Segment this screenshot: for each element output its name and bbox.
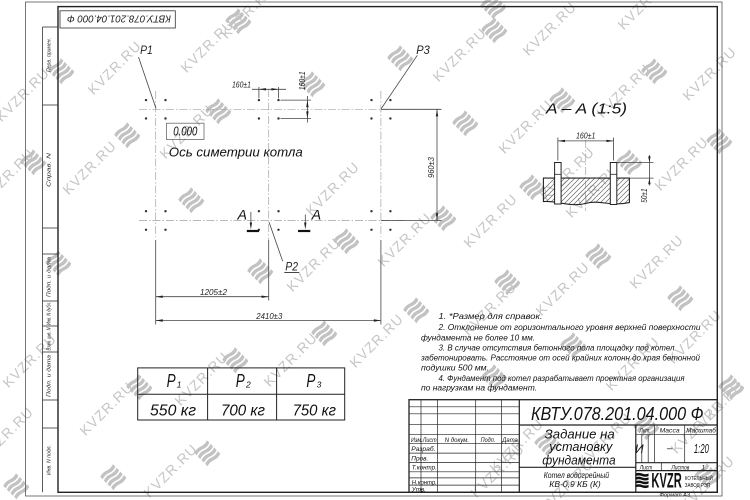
svg-text:Котел водогрейный: Котел водогрейный xyxy=(544,471,610,480)
svg-text:ЗАВОД РЭП: ЗАВОД РЭП xyxy=(685,483,710,489)
svg-text:KVZR.RU: KVZR.RU xyxy=(0,403,37,463)
svg-text:забетонировать. Расстояние о: забетонировать. Расстояние от осей крайн… xyxy=(420,352,700,362)
svg-text:KVZR: KVZR xyxy=(651,470,681,493)
svg-text:фундамента: фундамента xyxy=(542,452,615,467)
svg-text:160±1: 160±1 xyxy=(232,79,251,89)
svg-text:KVZR.RU: KVZR.RU xyxy=(346,310,406,370)
svg-text:KVZR.RU: KVZR.RU xyxy=(651,133,711,193)
svg-text:И: И xyxy=(635,442,644,456)
svg-text:P: P xyxy=(306,371,315,391)
svg-text:Изм.Лист: Изм.Лист xyxy=(411,437,437,444)
svg-text:Перв. примен.: Перв. примен. xyxy=(46,38,52,72)
svg-text:Инв. N подл.: Инв. N подл. xyxy=(46,445,52,475)
svg-text:Ось симетрии котла: Ось симетрии котла xyxy=(169,145,303,159)
svg-text:KVZR.RU: KVZR.RU xyxy=(467,440,527,500)
svg-text:A – A (1:5): A – A (1:5) xyxy=(545,101,627,118)
svg-text:Пров.: Пров. xyxy=(411,455,428,462)
svg-text:P2: P2 xyxy=(285,260,298,274)
svg-text:P: P xyxy=(167,371,176,391)
svg-text:Подп.: Подп. xyxy=(481,436,496,444)
svg-text:фундамента не более 10 мм.: фундамента не более 10 мм. xyxy=(421,332,535,342)
svg-text:2. Отклонение от горизонтал: 2. Отклонение от горизонтального уровня … xyxy=(438,322,701,332)
svg-text:KVZR.RU: KVZR.RU xyxy=(374,209,434,269)
svg-text:550 кг: 550 кг xyxy=(150,403,196,420)
svg-text:KVZR.RU: KVZR.RU xyxy=(532,258,592,318)
svg-text:KVZR.RU: KVZR.RU xyxy=(519,0,579,59)
svg-text:2: 2 xyxy=(245,380,251,390)
svg-text:1: 1 xyxy=(701,464,705,471)
svg-text:Подп. и дата: Подп. и дата xyxy=(46,354,52,397)
svg-text:Подп. и дата: Подп. и дата xyxy=(46,256,52,297)
svg-text:КВ-0,9 КБ (К): КВ-0,9 КБ (К) xyxy=(549,480,601,489)
svg-text:N докум.: N докум. xyxy=(445,436,469,444)
svg-text:A: A xyxy=(236,207,247,223)
svg-text:1. *Размер для справок.: 1. *Размер для справок. xyxy=(439,311,543,321)
svg-text:KVZR.RU: KVZR.RU xyxy=(460,190,520,250)
svg-text:960±3: 960±3 xyxy=(426,157,436,178)
svg-text:KVZR.RU: KVZR.RU xyxy=(140,440,200,500)
svg-text:1205±2: 1205±2 xyxy=(200,287,227,297)
svg-text:A: A xyxy=(311,207,322,223)
svg-text:по нагрузкам на фундамент.: по нагрузкам на фундамент. xyxy=(421,382,537,392)
svg-text:P1: P1 xyxy=(140,43,153,57)
svg-text:подушки 500 мм.: подушки 500 мм. xyxy=(421,362,489,372)
svg-text:700 кг: 700 кг xyxy=(221,403,265,420)
svg-text:1: 1 xyxy=(177,380,182,390)
svg-text:Инв. N дубл.: Инв. N дубл. xyxy=(46,302,52,325)
svg-text:KVZR.RU: KVZR.RU xyxy=(614,0,674,33)
svg-text:KVZR.RU: KVZR.RU xyxy=(679,43,739,103)
svg-text:160±1: 160±1 xyxy=(297,71,307,90)
svg-text:1:20: 1:20 xyxy=(694,442,709,456)
svg-text:160±1: 160±1 xyxy=(576,131,596,141)
svg-text:Масса: Масса xyxy=(660,428,680,435)
svg-text:2410±3: 2410±3 xyxy=(255,311,282,321)
svg-text:Лит.: Лит. xyxy=(639,428,651,435)
svg-text:Взам. инв. N: Взам. инв. N xyxy=(46,327,52,351)
svg-text:–: – xyxy=(666,444,673,455)
svg-text:КОТЕЛЬНЫЙ: КОТЕЛЬНЫЙ xyxy=(685,474,713,482)
svg-text:P: P xyxy=(236,371,245,391)
svg-text:Разраб.: Разраб. xyxy=(411,445,435,453)
svg-text:KVZR.RU: KVZR.RU xyxy=(429,24,489,84)
svg-text:Формат А3: Формат А3 xyxy=(660,492,691,498)
svg-text:Н.контр.: Н.контр. xyxy=(412,479,437,486)
svg-text:КВТУ.078.201.04.000 Ф: КВТУ.078.201.04.000 Ф xyxy=(67,13,171,25)
svg-text:Т.контр.: Т.контр. xyxy=(412,465,437,472)
svg-text:Утв.: Утв. xyxy=(411,486,426,493)
svg-text:50±1: 50±1 xyxy=(639,188,649,202)
svg-text:KVZR.RU: KVZR.RU xyxy=(626,231,686,291)
svg-text:3. В случае отсутствия бет: 3. В случае отсутствия бетонного пола пл… xyxy=(439,342,675,352)
svg-text:3: 3 xyxy=(317,380,322,390)
svg-text:Справ. N: Справ. N xyxy=(46,152,52,187)
svg-text:0.000: 0.000 xyxy=(173,124,198,139)
svg-text:P3: P3 xyxy=(416,43,430,57)
svg-text:КВТУ.078.201.04.000 Ф: КВТУ.078.201.04.000 Ф xyxy=(531,403,704,424)
svg-text:KVZR.RU: KVZR.RU xyxy=(0,64,53,124)
svg-text:Масштаб: Масштаб xyxy=(686,427,717,435)
svg-text:KVZR.RU: KVZR.RU xyxy=(171,348,231,408)
svg-text:750 кг: 750 кг xyxy=(293,403,337,420)
svg-text:KVZR.RU: KVZR.RU xyxy=(84,37,144,97)
svg-text:Дата: Дата xyxy=(501,437,518,444)
svg-text:KVZR.RU: KVZR.RU xyxy=(59,137,119,197)
